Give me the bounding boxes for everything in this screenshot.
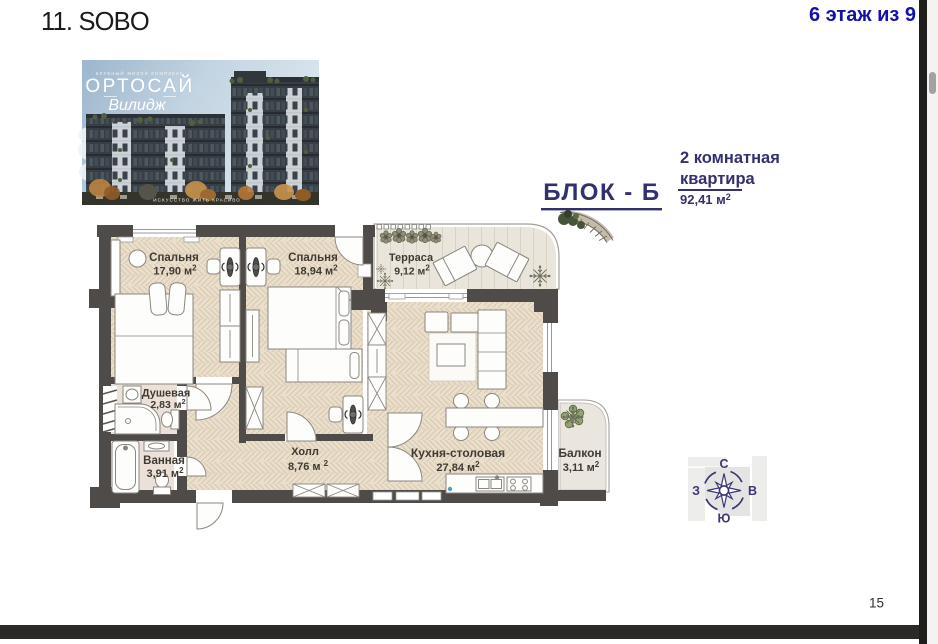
svg-text:92,41 м2: 92,41 м2 (680, 192, 731, 207)
svg-text:3,11 м2: 3,11 м2 (563, 460, 600, 474)
svg-text:17,90 м2: 17,90 м2 (153, 264, 197, 278)
svg-text:ОРТОСАЙ: ОРТОСАЙ (85, 75, 194, 97)
svg-text:18,94 м2: 18,94 м2 (294, 264, 338, 278)
svg-text:С: С (719, 457, 728, 471)
svg-text:8,76 м 2: 8,76 м 2 (288, 459, 329, 473)
svg-text:15: 15 (869, 596, 884, 611)
svg-text:Спальня: Спальня (149, 252, 199, 264)
svg-text:Ю: Ю (718, 512, 731, 526)
svg-text:2 комнатная: 2 комнатная (680, 149, 780, 167)
svg-text:Спальня: Спальня (288, 252, 338, 264)
svg-text:Терраса: Терраса (389, 252, 434, 264)
svg-text:З: З (692, 484, 700, 498)
svg-text:В: В (748, 484, 757, 498)
svg-text:6 этаж из 9: 6 этаж из 9 (809, 4, 916, 26)
svg-text:3,91 м2: 3,91 м2 (146, 466, 184, 480)
svg-text:2,83 м2: 2,83 м2 (150, 397, 185, 411)
svg-text:27,84 м2: 27,84 м2 (436, 460, 480, 474)
svg-text:Вилидж: Вилидж (108, 97, 166, 114)
svg-text:Кухня-столовая: Кухня-столовая (411, 446, 505, 460)
svg-text:квартира: квартира (680, 170, 756, 188)
svg-text:ИСКУССТВО ЖИТЬ КРАСИВО: ИСКУССТВО ЖИТЬ КРАСИВО (153, 198, 240, 203)
svg-text:Холл: Холл (291, 446, 319, 458)
svg-text:11. SOBO: 11. SOBO (41, 8, 149, 36)
svg-text:БЛОК - Б: БЛОК - Б (543, 179, 660, 206)
svg-text:Балкон: Балкон (558, 446, 601, 460)
svg-text:9,12 м2: 9,12 м2 (394, 264, 430, 278)
